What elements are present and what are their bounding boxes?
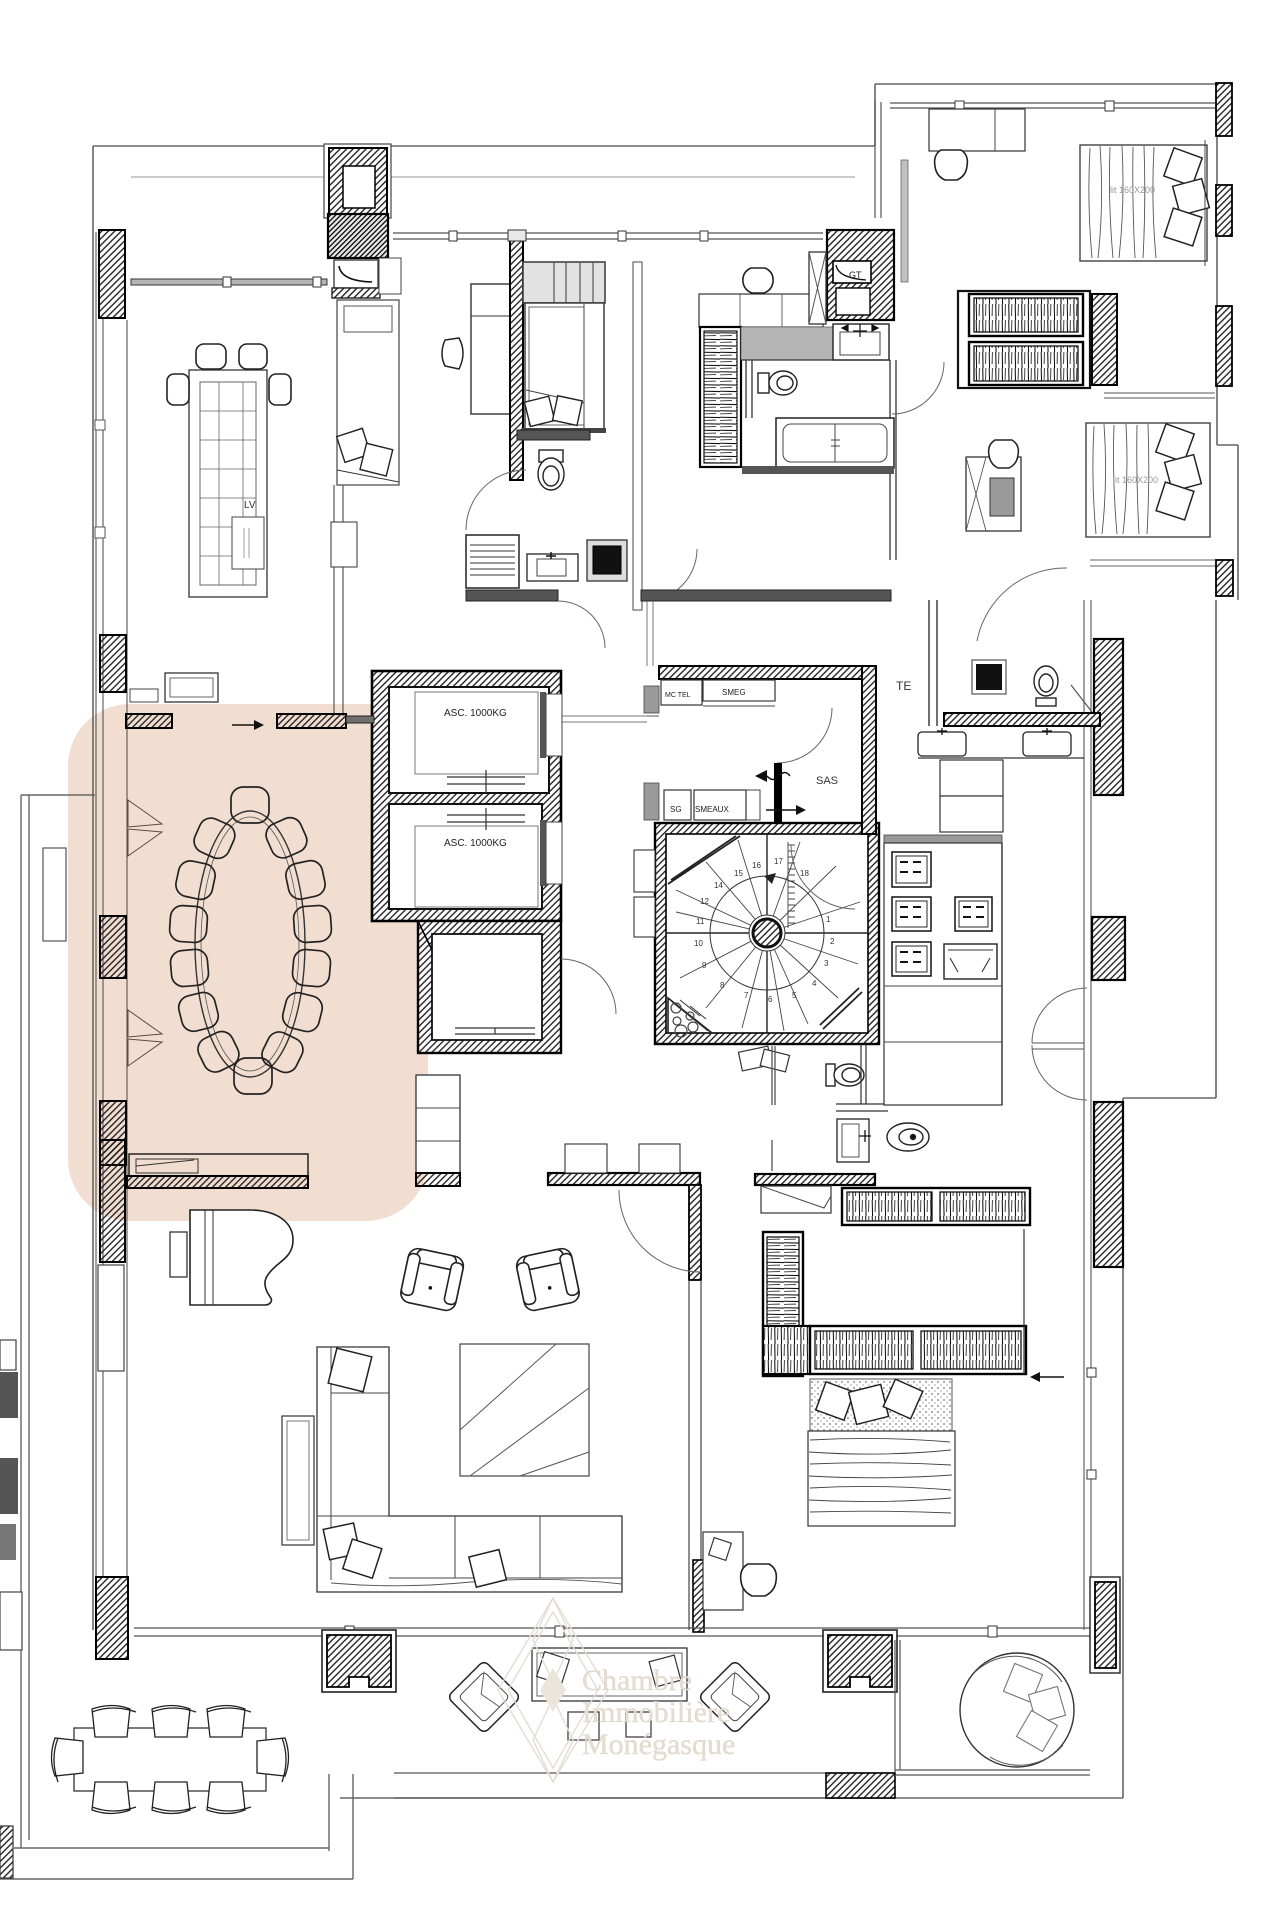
- svg-text:Monégasque: Monégasque: [582, 1728, 735, 1761]
- svg-text:17: 17: [774, 857, 783, 866]
- svg-text:SMEAUX: SMEAUX: [695, 805, 729, 814]
- svg-text:6: 6: [768, 995, 773, 1004]
- svg-text:14: 14: [714, 881, 723, 890]
- svg-text:16: 16: [752, 861, 761, 870]
- svg-text:18: 18: [800, 869, 809, 878]
- svg-text:12: 12: [700, 897, 709, 906]
- svg-text:9: 9: [702, 961, 707, 970]
- svg-text:MC TEL: MC TEL: [665, 692, 691, 699]
- svg-text:GT: GT: [849, 270, 862, 280]
- svg-text:lit 160X200: lit 160X200: [1113, 475, 1158, 485]
- svg-text:lit 160X200: lit 160X200: [1110, 185, 1155, 195]
- svg-text:SG: SG: [670, 805, 682, 814]
- svg-text:1: 1: [826, 915, 831, 924]
- svg-text:Immobilière: Immobilière: [582, 1696, 730, 1729]
- svg-text:Chambre: Chambre: [582, 1664, 692, 1697]
- svg-text:3: 3: [824, 959, 829, 968]
- svg-text:10: 10: [694, 939, 703, 948]
- svg-text:11: 11: [696, 917, 705, 926]
- svg-text:8: 8: [720, 981, 725, 990]
- svg-text:2: 2: [830, 937, 835, 946]
- svg-text:SAS: SAS: [816, 775, 838, 787]
- svg-text:15: 15: [734, 869, 743, 878]
- svg-text:ASC. 1000KG: ASC. 1000KG: [444, 708, 507, 719]
- svg-text:SMEG: SMEG: [722, 688, 746, 697]
- svg-text:4: 4: [812, 979, 817, 988]
- svg-text:7: 7: [744, 991, 749, 1000]
- svg-text:ASC. 1000KG: ASC. 1000KG: [444, 838, 507, 849]
- svg-text:5: 5: [792, 991, 797, 1000]
- svg-text:LV: LV: [244, 500, 256, 511]
- svg-text:TE: TE: [896, 679, 911, 693]
